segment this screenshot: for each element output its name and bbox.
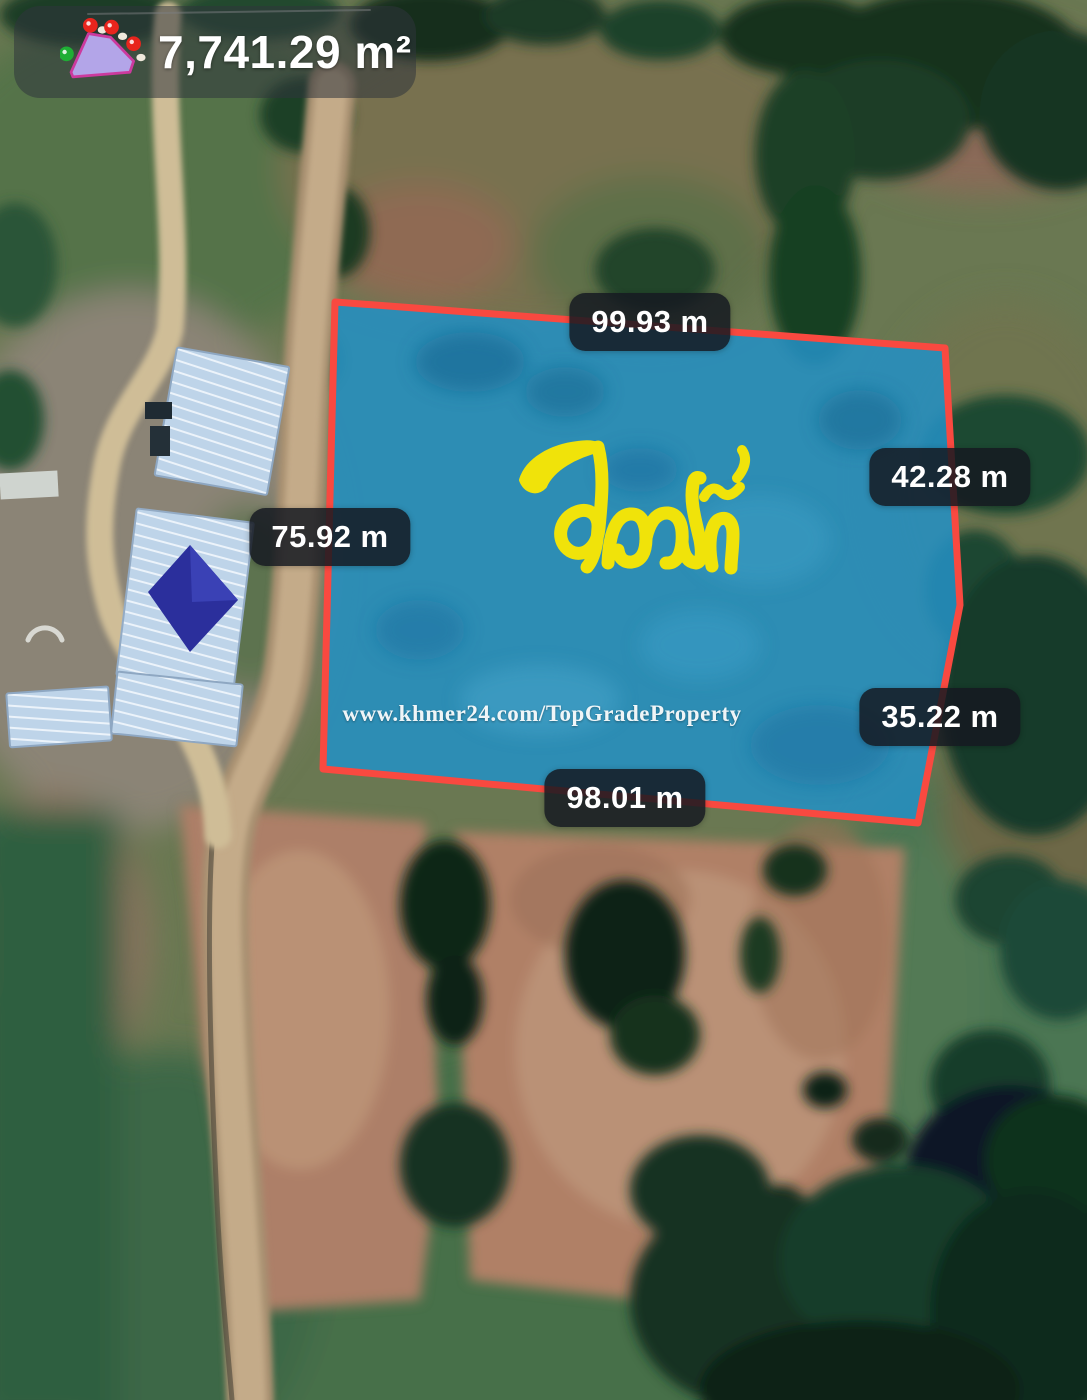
satellite-map-image: 7,741.29 m² 99.93 m 42.28 m 75.92 m 35.2… [0,0,1087,1400]
measurement-badge-left: 75.92 m [249,508,410,566]
area-value: 7,741.29 m² [158,25,412,79]
area-badge: 7,741.29 m² [14,6,416,98]
measurement-value: 99.93 m [591,304,708,340]
measurement-badge-bottom: 98.01 m [544,769,705,827]
watermark: www.khmer24.com/TopGradeProperty [342,701,741,727]
measurement-badge-right-lower: 35.22 m [859,688,1020,746]
measurement-value: 75.92 m [271,519,388,555]
measurement-value: 42.28 m [891,459,1008,495]
measurement-value: 98.01 m [566,780,683,816]
measurement-badge-right-upper: 42.28 m [869,448,1030,506]
measurement-value: 35.22 m [881,699,998,735]
area-polygon-measure-icon [60,15,152,89]
measurement-badge-top: 99.93 m [569,293,730,351]
